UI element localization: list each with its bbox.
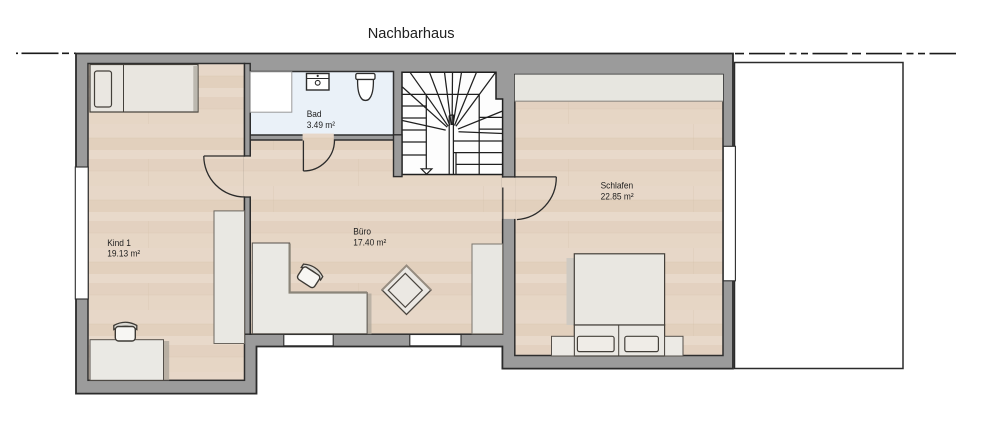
svg-text:3.49 m²: 3.49 m² — [307, 120, 335, 130]
svg-text:22.85 m²: 22.85 m² — [601, 191, 634, 201]
svg-text:19.13 m²: 19.13 m² — [107, 248, 140, 258]
svg-text:Kind 1: Kind 1 — [107, 238, 131, 248]
svg-text:Nachbarhaus: Nachbarhaus — [368, 26, 455, 42]
svg-text:Büro: Büro — [353, 226, 371, 236]
svg-text:17.40 m²: 17.40 m² — [353, 237, 386, 247]
svg-text:Bad: Bad — [307, 109, 322, 119]
svg-text:Schlafen: Schlafen — [601, 180, 634, 190]
